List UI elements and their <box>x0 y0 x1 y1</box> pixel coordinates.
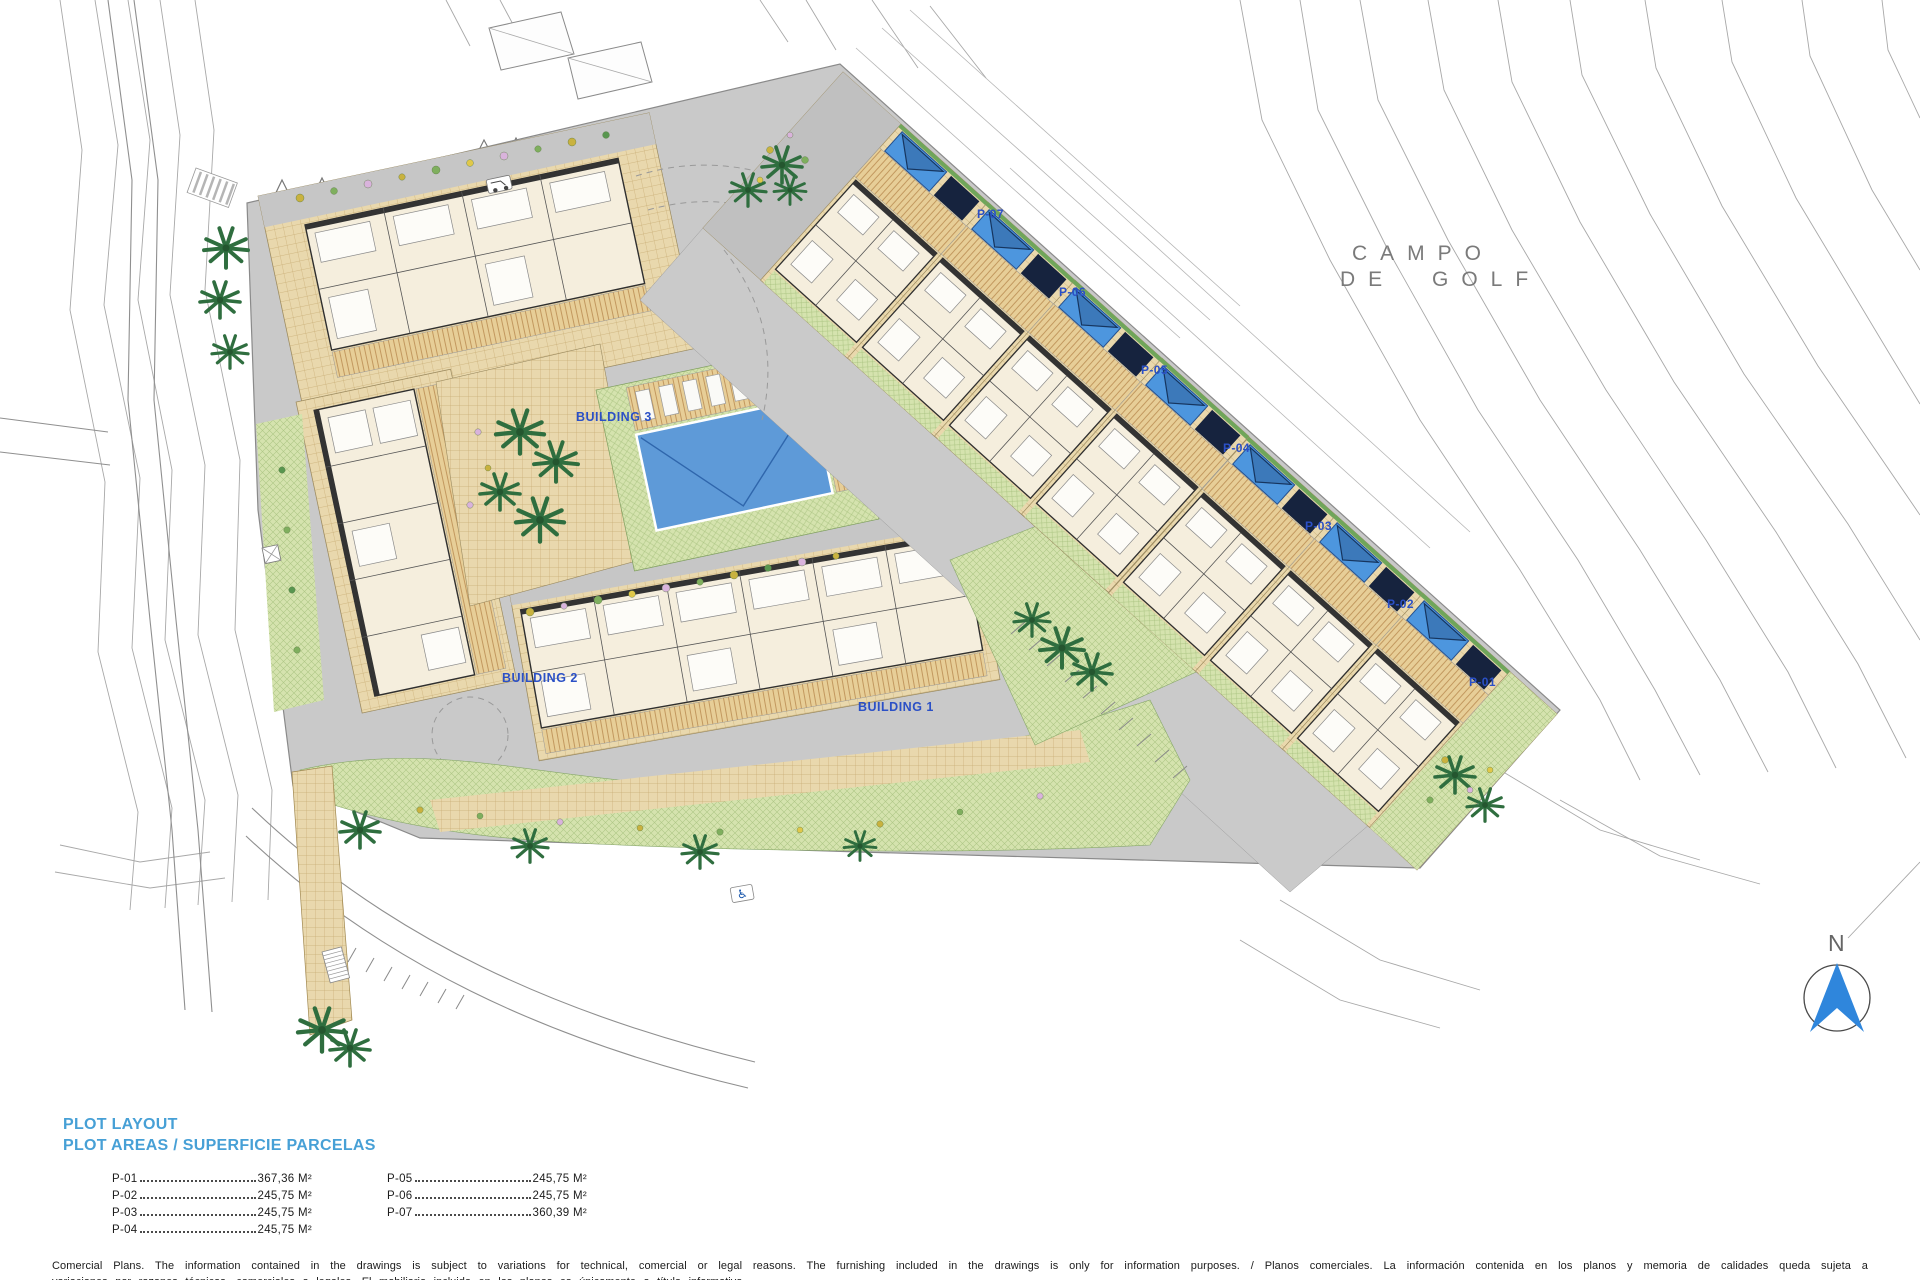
leader-dots <box>415 1214 531 1216</box>
plot-area: 360,39 M² <box>533 1207 587 1219</box>
golf-course-label-line1: CAMPO <box>1352 242 1494 266</box>
plot-area: 245,75 M² <box>258 1207 312 1219</box>
plot-id: P-02 <box>112 1190 138 1202</box>
plot-area: 245,75 M² <box>533 1190 587 1202</box>
leader-dots <box>140 1197 256 1199</box>
plot-label-p07: P-07 <box>977 207 1004 221</box>
legend-row-p02: P-02 245,75 M² <box>112 1185 312 1202</box>
leader-dots <box>415 1180 531 1182</box>
plot-id: P-04 <box>112 1224 138 1236</box>
legend-row-p07: P-07 360,39 M² <box>387 1202 587 1219</box>
plot-area: 245,75 M² <box>258 1190 312 1202</box>
legend-row-p03: P-03 245,75 M² <box>112 1202 312 1219</box>
plot-area: 367,36 M² <box>258 1173 312 1185</box>
plot-label-p06: P-06 <box>1059 285 1086 299</box>
accessible-parking-icon: ♿ <box>730 884 754 903</box>
legend-column-1: P-01 367,36 M² P-02 245,75 M² P-03 245,7… <box>112 1168 312 1236</box>
building-3-label: BUILDING 3 <box>576 410 652 424</box>
plot-label-p03: P-03 <box>1305 519 1332 533</box>
leader-dots <box>415 1197 531 1199</box>
north-label: N <box>1828 930 1845 957</box>
disclaimer-line-1: Comercial Plans. The information contain… <box>52 1260 1868 1272</box>
legend-title: PLOT LAYOUT <box>63 1114 623 1135</box>
disclaimer-line-2: variaciones por razones técnicas, comerc… <box>52 1276 1868 1280</box>
plot-area: 245,75 M² <box>533 1173 587 1185</box>
plot-label-p01: P-01 <box>1469 675 1496 689</box>
north-arrow-icon <box>1804 963 1870 1032</box>
plot-id: P-06 <box>387 1190 413 1202</box>
plot-area: 245,75 M² <box>258 1224 312 1236</box>
plot-legend: PLOT LAYOUT PLOT AREAS / SUPERFICIE PARC… <box>63 1114 623 1156</box>
plot-label-p02: P-02 <box>1387 597 1414 611</box>
leader-dots <box>140 1180 256 1182</box>
plot-label-p05: P-05 <box>1141 363 1168 377</box>
legend-row-p06: P-06 245,75 M² <box>387 1185 587 1202</box>
plot-id: P-05 <box>387 1173 413 1185</box>
leader-dots <box>140 1231 256 1233</box>
plot-id: P-03 <box>112 1207 138 1219</box>
contour-lines-left <box>55 0 272 910</box>
plot-id: P-01 <box>112 1173 138 1185</box>
legend-column-2: P-05 245,75 M² P-06 245,75 M² P-07 360,3… <box>387 1168 587 1236</box>
legend-subtitle: PLOT AREAS / SUPERFICIE PARCELAS <box>63 1135 623 1156</box>
plot-label-p04: P-04 <box>1223 441 1250 455</box>
legend-row-p04: P-04 245,75 M² <box>112 1219 312 1236</box>
elevator-icon <box>262 545 281 564</box>
site-plan-page: ♿ <box>0 0 1920 1280</box>
leader-dots <box>140 1214 256 1216</box>
site-plan-drawing: ♿ <box>0 0 1920 1280</box>
building-1-label: BUILDING 1 <box>858 700 934 714</box>
plot-id: P-07 <box>387 1207 413 1219</box>
legend-row-p05: P-05 245,75 M² <box>387 1168 587 1185</box>
golf-course-label-line2: DE GOLF <box>1340 268 1541 292</box>
building-2-label: BUILDING 2 <box>502 671 578 685</box>
legend-row-p01: P-01 367,36 M² <box>112 1168 312 1185</box>
